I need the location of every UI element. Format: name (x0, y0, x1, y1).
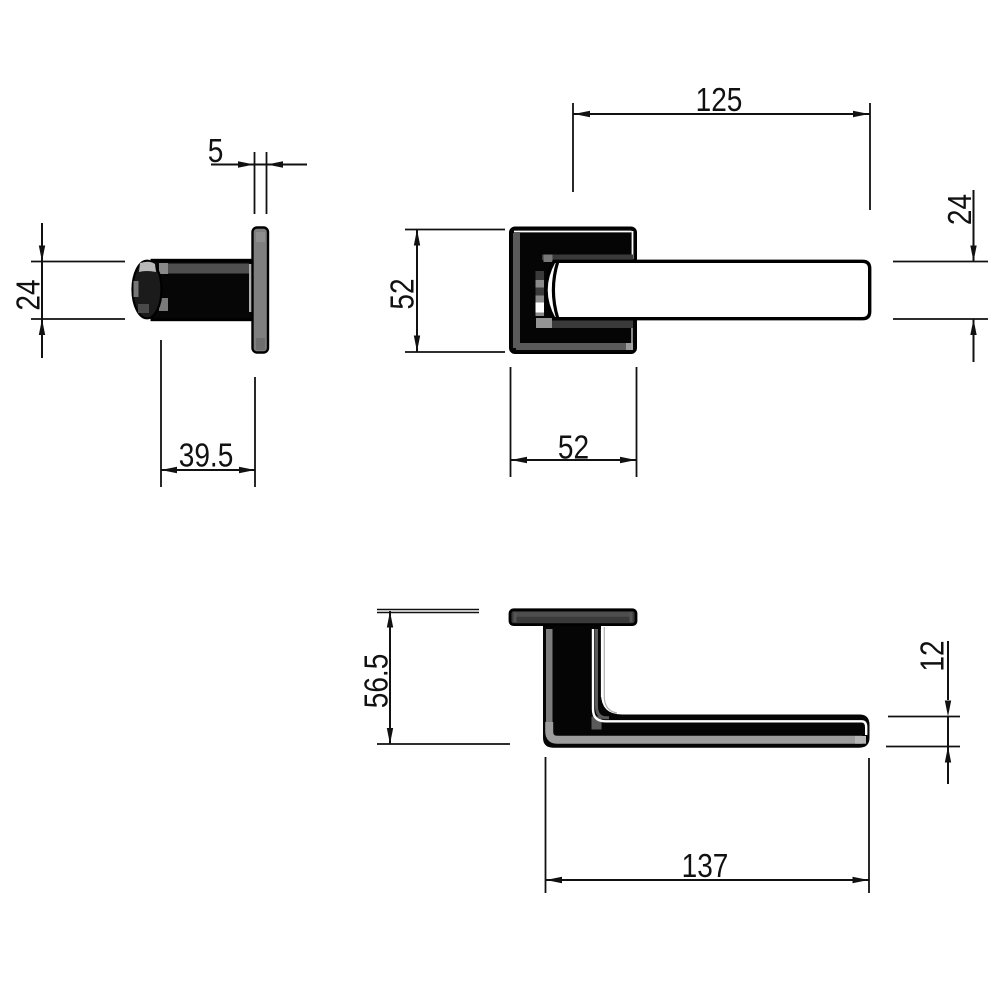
svg-text:125: 125 (696, 82, 743, 119)
svg-text:137: 137 (682, 848, 729, 885)
svg-text:52: 52 (558, 429, 589, 466)
svg-text:39.5: 39.5 (179, 437, 234, 474)
svg-text:24: 24 (942, 194, 979, 225)
svg-text:24: 24 (10, 279, 47, 310)
svg-text:56.5: 56.5 (358, 654, 395, 709)
svg-text:12: 12 (914, 640, 951, 671)
svg-text:52: 52 (384, 278, 421, 309)
